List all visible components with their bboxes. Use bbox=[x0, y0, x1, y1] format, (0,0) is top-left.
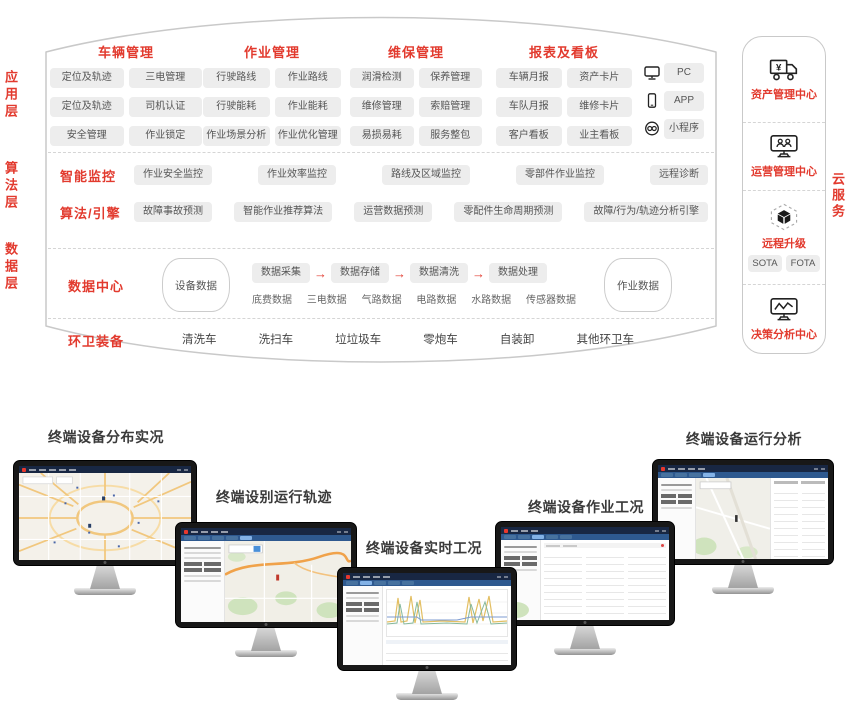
nav-item bbox=[383, 576, 390, 578]
monitor-label-track: 终端设别运行轨迹 bbox=[216, 487, 332, 507]
data-sub-row: 底费数据三电数据气路数据电路数据水路数据传感器数据 bbox=[252, 291, 576, 306]
list-cell bbox=[678, 494, 693, 498]
algo-pill: 作业效率监控 bbox=[258, 165, 336, 185]
app-group-operation: 作业管理 行驶路线作业路线行驶能耗作业能耗作业场景分析作业优化管理 bbox=[203, 42, 341, 146]
tab bbox=[402, 581, 414, 585]
sidebar-list bbox=[184, 562, 221, 572]
user-item bbox=[344, 531, 348, 533]
tab-active bbox=[532, 535, 544, 539]
cloud-section-label: 资产管理中心 bbox=[751, 86, 817, 102]
app-group-pills: 车辆月报资产卡片车队月报维修卡片客户看板业主看板 bbox=[496, 68, 632, 146]
monitor-chart-icon bbox=[769, 297, 799, 322]
feature-pill: 客户看板 bbox=[496, 126, 562, 146]
feature-pill: 定位及轨迹 bbox=[50, 68, 124, 88]
svg-text:¥: ¥ bbox=[776, 63, 782, 74]
platform-label: PC bbox=[664, 63, 704, 83]
screen-map-track bbox=[181, 528, 351, 622]
tab-active bbox=[240, 536, 252, 540]
nav-item bbox=[668, 468, 675, 470]
screen-sidebar bbox=[181, 541, 225, 622]
feature-pill: 三电管理 bbox=[129, 68, 203, 88]
data-flow-step: 数据采集 → bbox=[252, 263, 327, 283]
cloud-section-upgrade: 远程升级 SOTA FOTA bbox=[743, 190, 825, 285]
feature-pill: 车辆月报 bbox=[496, 68, 562, 88]
algo-row-label: 算法/引擎 bbox=[60, 203, 132, 222]
panel-header bbox=[774, 481, 825, 484]
tab bbox=[184, 536, 196, 540]
feature-pill: 维修卡片 bbox=[567, 97, 633, 117]
equipment-item: 清洗车 bbox=[182, 331, 217, 347]
user-item bbox=[177, 469, 181, 471]
monitor-stand-neck bbox=[570, 626, 600, 649]
list-cell bbox=[522, 556, 538, 560]
tab bbox=[689, 473, 701, 477]
cloud-section-label: 远程升级 bbox=[762, 235, 806, 251]
table-columns bbox=[544, 551, 666, 617]
nav-item bbox=[191, 531, 198, 533]
sidebar-item bbox=[184, 547, 221, 549]
flow-arrow-icon: → bbox=[314, 267, 327, 280]
algo-pill: 零部件作业监控 bbox=[516, 165, 604, 185]
nav-item bbox=[373, 576, 380, 578]
feature-pill: 作业场景分析 bbox=[203, 126, 270, 146]
panel-lists bbox=[774, 487, 825, 559]
bezel-dot bbox=[584, 621, 587, 624]
page: 应用层 算法层 数据层 车辆管理 定位及轨迹三电管理定位及轨迹司机认证安全管理作… bbox=[0, 0, 851, 715]
analysis-side-panel bbox=[770, 478, 828, 559]
screen-topbar bbox=[181, 528, 351, 535]
table-column bbox=[586, 551, 624, 617]
data-flow-step: 数据清洗 → bbox=[410, 263, 485, 283]
sidebar-item bbox=[184, 552, 221, 554]
app-group-maintenance: 维保管理 润滑检测保养管理维修管理索赔管理易损易耗服务整包 bbox=[350, 42, 482, 146]
bezel-dot bbox=[742, 560, 745, 563]
list-cell bbox=[504, 562, 520, 566]
screen-realtime bbox=[343, 573, 511, 665]
platform-mini-program: 小程序 bbox=[644, 119, 704, 138]
monitor-stand-neck bbox=[251, 628, 281, 651]
feature-pill: 作业锁定 bbox=[129, 126, 203, 146]
log-table bbox=[386, 647, 508, 662]
app-group-pills: 行驶路线作业路线行驶能耗作业能耗作业场景分析作业优化管理 bbox=[203, 68, 341, 146]
user-item bbox=[504, 576, 508, 578]
algo-row-label: 智能监控 bbox=[60, 166, 132, 185]
monitor-stand-neck bbox=[90, 566, 120, 589]
screen-sidebar bbox=[343, 586, 383, 665]
data-center-label: 数据中心 bbox=[68, 276, 124, 295]
monitor-realtime bbox=[337, 567, 517, 700]
list-cell bbox=[364, 608, 380, 612]
user-item bbox=[497, 576, 501, 578]
user-item bbox=[662, 530, 666, 532]
monitor-bezel bbox=[13, 460, 197, 566]
tab bbox=[198, 536, 210, 540]
algo-pill: 故障/行为/轨迹分析引擎 bbox=[584, 202, 708, 222]
tab bbox=[374, 581, 386, 585]
data-sub-item: 三电数据 bbox=[307, 291, 347, 306]
panel-list bbox=[802, 487, 826, 559]
platform-app: APP bbox=[644, 91, 704, 110]
sidebar-item bbox=[346, 597, 379, 599]
list-cell bbox=[204, 568, 222, 572]
work-data-store: 作业数据 bbox=[604, 258, 672, 312]
monitor-stand-base bbox=[712, 587, 774, 594]
user-item bbox=[814, 468, 818, 470]
feature-pill: 作业路线 bbox=[275, 68, 342, 88]
screen-map-overview bbox=[19, 466, 191, 560]
tab bbox=[388, 581, 400, 585]
logo-icon bbox=[504, 529, 508, 533]
nav-item bbox=[521, 530, 528, 532]
user-item bbox=[337, 531, 341, 533]
monitor-bezel bbox=[175, 522, 357, 628]
feature-pill: 行驶能耗 bbox=[203, 97, 270, 117]
cloud-section-operation: 运营管理中心 bbox=[743, 122, 825, 190]
cloud-section-label: 决策分析中心 bbox=[751, 326, 817, 342]
sidebar-list bbox=[504, 556, 537, 566]
monitor-bezel bbox=[337, 567, 517, 671]
toolbar-item bbox=[563, 545, 577, 547]
feature-pill: 索赔管理 bbox=[419, 97, 483, 117]
monitor-bezel bbox=[652, 459, 834, 565]
tab bbox=[560, 535, 572, 539]
table-column bbox=[628, 551, 666, 617]
data-flow-pill: 数据存储 bbox=[331, 263, 389, 283]
layer-label-application: 应用层 bbox=[4, 70, 17, 121]
panel-list bbox=[774, 487, 798, 559]
flow-arrow-icon: → bbox=[393, 267, 406, 280]
sidebar-item bbox=[184, 580, 221, 582]
app-group-report: 报表及看板 车辆月报资产卡片车队月报维修卡片客户看板业主看板 bbox=[496, 42, 632, 146]
list-cell bbox=[661, 494, 676, 498]
screen-topbar bbox=[343, 573, 511, 580]
screen-topbar bbox=[658, 465, 828, 472]
data-sub-item: 电路数据 bbox=[416, 291, 456, 306]
list-cell bbox=[522, 562, 538, 566]
monitor-label-work: 终端设备作业工况 bbox=[528, 497, 644, 517]
monitor-stand-base bbox=[74, 588, 136, 595]
algo-pill: 零配件生命周期预测 bbox=[454, 202, 562, 222]
data-sub-item: 水路数据 bbox=[471, 291, 511, 306]
mini-program-link-icon bbox=[644, 121, 660, 136]
cloud-panel: ¥ 资产管理中心 运营管理中心 bbox=[742, 36, 826, 354]
algo-pill: 路线及区域监控 bbox=[382, 165, 470, 185]
list-cell bbox=[184, 568, 202, 572]
data-flow-pill: 数据采集 bbox=[252, 263, 310, 283]
nav-item bbox=[678, 468, 685, 470]
monitor-distribution bbox=[13, 460, 197, 595]
algo-pill: 远程诊断 bbox=[650, 165, 708, 185]
nav-item bbox=[59, 469, 66, 471]
data-flow-step: 数据存储 → bbox=[331, 263, 406, 283]
nav-item bbox=[698, 468, 705, 470]
feature-pill: 资产卡片 bbox=[567, 68, 633, 88]
equipment-item: 垃垃圾车 bbox=[335, 331, 381, 347]
fota-pill: FOTA bbox=[786, 255, 820, 273]
logo-icon bbox=[661, 467, 665, 471]
sidebar-item bbox=[346, 620, 379, 622]
monitor-track bbox=[175, 522, 357, 657]
tab-active bbox=[360, 581, 372, 585]
algo-row-monitoring: 智能监控 作业安全监控作业效率监控路线及区域监控零部件作业监控远程诊断 bbox=[60, 165, 708, 185]
app-group-title: 报表及看板 bbox=[496, 42, 632, 61]
tab bbox=[518, 535, 530, 539]
feature-pill: 定位及轨迹 bbox=[50, 97, 124, 117]
layer-divider bbox=[48, 248, 714, 249]
realtime-content bbox=[383, 586, 511, 665]
algo-pill: 作业安全监控 bbox=[134, 165, 212, 185]
list-cell bbox=[346, 602, 362, 606]
logo-icon bbox=[184, 530, 188, 534]
nav-item bbox=[221, 531, 228, 533]
monitor-stand-base bbox=[235, 650, 297, 657]
feature-pill: 业主看板 bbox=[567, 126, 633, 146]
monitor-bezel bbox=[495, 521, 675, 626]
feature-pill: 司机认证 bbox=[129, 97, 203, 117]
feature-pill: 易损易耗 bbox=[350, 126, 414, 146]
nav-item bbox=[201, 531, 208, 533]
app-group-pills: 润滑检测保养管理维修管理索赔管理易损易耗服务整包 bbox=[350, 68, 482, 146]
data-sub-item: 底费数据 bbox=[252, 291, 292, 306]
layer-divider bbox=[48, 318, 714, 319]
list-cell bbox=[678, 500, 693, 504]
equipment-label: 环卫装备 bbox=[68, 331, 124, 350]
table-column bbox=[544, 551, 582, 617]
truck-yen-icon: ¥ bbox=[769, 56, 799, 82]
cloud-section-label: 运营管理中心 bbox=[751, 163, 817, 179]
signal-chart bbox=[386, 589, 508, 637]
tab bbox=[504, 535, 516, 539]
upgrade-pills: SOTA FOTA bbox=[748, 255, 820, 273]
monitor-label-distribution: 终端设备分布实况 bbox=[48, 427, 164, 447]
feature-pill: 维修管理 bbox=[350, 97, 414, 117]
sota-pill: SOTA bbox=[748, 255, 782, 273]
user-item bbox=[655, 530, 659, 532]
list-cell bbox=[204, 562, 222, 566]
equipment-item: 自装卸 bbox=[500, 331, 535, 347]
monitor-stand-base bbox=[554, 648, 616, 655]
tab bbox=[675, 473, 687, 477]
nav-item bbox=[511, 530, 518, 532]
screen-topbar bbox=[19, 466, 191, 473]
tab bbox=[346, 581, 358, 585]
sidebar-item bbox=[661, 484, 692, 486]
bezel-dot bbox=[426, 666, 429, 669]
equipment-items: 清洗车洗扫车垃垃圾车零炮车自装卸其他环卫车 bbox=[182, 331, 634, 347]
cloud-section-decision: 决策分析中心 bbox=[743, 284, 825, 353]
tab-active bbox=[703, 473, 715, 477]
feature-pill: 作业能耗 bbox=[275, 97, 342, 117]
platform-pc: PC bbox=[644, 63, 704, 82]
cube-upgrade-icon bbox=[768, 203, 800, 231]
track-map bbox=[225, 541, 351, 622]
sidebar-item bbox=[504, 546, 537, 548]
toolbar-dot bbox=[661, 544, 664, 547]
algo-pills: 故障事故预测智能作业推荐算法运营数据预测零配件生命周期预测故障/行为/轨迹分析引… bbox=[134, 202, 708, 222]
screen-work-table bbox=[501, 527, 669, 620]
cloud-side-label: 云服务 bbox=[831, 172, 844, 220]
monitor-stand-neck bbox=[728, 565, 758, 588]
monitor-stand-neck bbox=[412, 671, 442, 694]
app-group-vehicle: 车辆管理 定位及轨迹三电管理定位及轨迹司机认证安全管理作业锁定 bbox=[50, 42, 202, 146]
nav-item bbox=[69, 469, 76, 471]
list-cell bbox=[346, 608, 362, 612]
platform-label: 小程序 bbox=[664, 119, 704, 139]
nav-item bbox=[29, 469, 36, 471]
screen-topbar bbox=[501, 527, 669, 534]
feature-pill: 车队月报 bbox=[496, 97, 562, 117]
layer-label-algorithm: 算法层 bbox=[4, 161, 17, 212]
app-group-pills: 定位及轨迹三电管理定位及轨迹司机认证安全管理作业锁定 bbox=[50, 68, 202, 146]
list-cell bbox=[184, 562, 202, 566]
sidebar-item bbox=[346, 615, 379, 617]
data-flow-pill: 数据处理 bbox=[489, 263, 547, 283]
nav-item bbox=[688, 468, 695, 470]
layer-divider bbox=[48, 152, 714, 153]
panel-header-item bbox=[774, 481, 798, 484]
algo-pills: 作业安全监控作业效率监控路线及区域监控零部件作业监控远程诊断 bbox=[134, 165, 708, 185]
list-cell bbox=[661, 500, 676, 504]
layer-label-data: 数据层 bbox=[4, 242, 17, 293]
table-toolbar bbox=[544, 543, 666, 548]
tab bbox=[226, 536, 238, 540]
algo-row-engine: 算法/引擎 故障事故预测智能作业推荐算法运营数据预测零配件生命周期预测故障/行为… bbox=[60, 202, 708, 222]
analysis-map bbox=[696, 478, 770, 559]
feature-pill: 安全管理 bbox=[50, 126, 124, 146]
screen-analysis bbox=[658, 465, 828, 559]
sidebar-item bbox=[184, 557, 221, 559]
equipment-item: 洗扫车 bbox=[259, 331, 294, 347]
sidebar-item bbox=[504, 551, 537, 553]
nav-item bbox=[353, 576, 360, 578]
monitor-stand-base bbox=[396, 693, 458, 700]
equipment-item: 其他环卫车 bbox=[576, 331, 634, 347]
device-data-store: 设备数据 bbox=[162, 258, 230, 312]
data-flow-step: 数据处理 → bbox=[489, 263, 547, 283]
feature-pill: 行驶路线 bbox=[203, 68, 270, 88]
table-header bbox=[386, 640, 508, 644]
nav-item bbox=[49, 469, 56, 471]
data-sub-item: 传感器数据 bbox=[526, 291, 576, 306]
bezel-dot bbox=[265, 623, 268, 626]
monitor-label-analysis: 终端设备运行分析 bbox=[686, 429, 802, 449]
phone-icon bbox=[644, 93, 660, 108]
nav-item bbox=[211, 531, 218, 533]
pc-icon bbox=[644, 66, 660, 80]
list-cell bbox=[364, 602, 380, 606]
city-map bbox=[19, 473, 191, 560]
app-group-title: 车辆管理 bbox=[50, 42, 202, 61]
sidebar-list bbox=[661, 494, 692, 504]
logo-icon bbox=[346, 575, 350, 579]
tab bbox=[661, 473, 673, 477]
cloud-section-asset: ¥ 资产管理中心 bbox=[743, 37, 825, 122]
app-group-title: 维保管理 bbox=[350, 42, 482, 61]
platform-label: APP bbox=[664, 91, 704, 111]
nav-item bbox=[363, 576, 370, 578]
monitor-work bbox=[495, 521, 675, 655]
toolbar-item bbox=[546, 545, 560, 547]
logo-icon bbox=[22, 468, 26, 472]
tab bbox=[546, 535, 558, 539]
feature-pill: 润滑检测 bbox=[350, 68, 414, 88]
feature-pill: 保养管理 bbox=[419, 68, 483, 88]
data-flow-pill: 数据清洗 bbox=[410, 263, 468, 283]
monitor-label-realtime: 终端设备实时工况 bbox=[366, 538, 482, 558]
sidebar-list bbox=[346, 602, 379, 612]
sidebar-item bbox=[346, 592, 379, 594]
sidebar-item bbox=[661, 489, 692, 491]
user-item bbox=[821, 468, 825, 470]
nav-item bbox=[531, 530, 538, 532]
user-item bbox=[184, 469, 188, 471]
feature-pill: 服务整包 bbox=[419, 126, 483, 146]
bezel-dot bbox=[104, 561, 107, 564]
nav-item bbox=[39, 469, 46, 471]
feature-pill: 作业优化管理 bbox=[275, 126, 342, 146]
sidebar-item bbox=[184, 575, 221, 577]
algo-pill: 智能作业推荐算法 bbox=[234, 202, 332, 222]
app-group-title: 作业管理 bbox=[203, 42, 341, 61]
work-table-area bbox=[541, 540, 669, 620]
equipment-item: 零炮车 bbox=[423, 331, 458, 347]
panel-header-item bbox=[801, 481, 825, 484]
list-cell bbox=[504, 556, 520, 560]
algo-pill: 运营数据预测 bbox=[354, 202, 432, 222]
platform-column: PC APP 小程序 bbox=[644, 63, 704, 138]
monitor-analysis bbox=[652, 459, 834, 594]
algo-pill: 故障事故预测 bbox=[134, 202, 212, 222]
sidebar-item bbox=[661, 507, 692, 509]
data-flow: 数据采集 → 数据存储 → 数据清洗 → 数据处理 → bbox=[252, 263, 547, 283]
tab bbox=[212, 536, 224, 540]
flow-arrow-icon: → bbox=[472, 267, 485, 280]
data-sub-item: 气路数据 bbox=[362, 291, 402, 306]
monitor-users-icon bbox=[769, 134, 799, 159]
